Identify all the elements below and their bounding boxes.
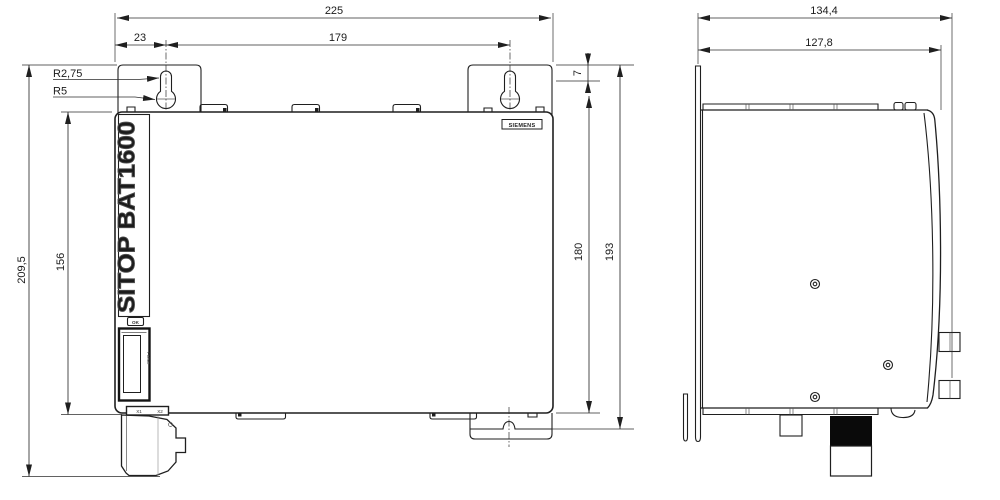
dim-height-with-tab: 193 xyxy=(604,243,616,261)
top-clip-nub xyxy=(223,108,227,112)
bottom-vent-rail xyxy=(703,408,878,415)
dimension-drawing-canvas: SIEMENS SITOP BAT1600 OK FUSE X1 X2 xyxy=(0,0,1000,500)
dim-total-width: 225 xyxy=(325,5,343,17)
battery-connector-outline xyxy=(122,415,186,476)
bottom-clip xyxy=(236,413,286,419)
dim-total-height: 209,5 xyxy=(16,256,28,284)
screw xyxy=(811,393,820,402)
top-terminal-bump xyxy=(894,103,903,111)
dim-front-face-height: 156 xyxy=(55,253,67,271)
terminal-x1-label: X1 xyxy=(136,409,142,414)
dim-body-depth: 127,8 xyxy=(805,37,833,49)
dim-total-depth: 134,4 xyxy=(810,5,838,17)
mounting-flange-bottom-right xyxy=(470,413,552,439)
bottom-clip-nub xyxy=(432,413,436,417)
din-latch xyxy=(684,394,688,441)
top-clip-nub xyxy=(416,108,420,112)
bottom-flange-slot xyxy=(470,422,552,430)
dim-body-height: 180 xyxy=(573,243,585,261)
dim-flange-drop: 7 xyxy=(572,70,584,76)
terminal-x2-label: X2 xyxy=(157,409,163,414)
dim-keyhole-offset: 23 xyxy=(134,32,146,44)
front-cover-inner-curve xyxy=(924,113,933,402)
top-clip-nub xyxy=(315,108,319,112)
side-view: 134,4 127,8 xyxy=(684,5,961,476)
back-mounting-plate xyxy=(696,66,701,442)
screw xyxy=(811,280,820,289)
dim-slot-radius: R2,75 xyxy=(53,68,82,80)
small-bottom-connector xyxy=(780,415,802,436)
front-cover-outer-curve xyxy=(927,110,941,408)
screw xyxy=(884,361,893,370)
front-view: SIEMENS SITOP BAT1600 OK FUSE X1 X2 xyxy=(16,5,634,477)
ok-indicator-label: OK xyxy=(132,320,140,325)
dim-keyhole-pitch: 179 xyxy=(329,32,347,44)
technical-drawing-page: SIEMENS SITOP BAT1600 OK FUSE X1 X2 xyxy=(0,0,1000,500)
dim-hole-radius: R5 xyxy=(53,86,67,98)
bottom-hook-tongue xyxy=(891,408,915,418)
leader-hole-radius xyxy=(53,97,155,100)
enclosure-body xyxy=(115,112,553,413)
top-vent-rail xyxy=(703,104,878,110)
side-hook-upper xyxy=(939,333,960,352)
side-hook-lower xyxy=(939,381,960,399)
brand-label: SIEMENS xyxy=(509,123,536,129)
battery-plug-lower xyxy=(831,446,872,476)
top-terminal-bump xyxy=(905,103,916,111)
battery-plug-upper xyxy=(831,417,872,447)
bottom-clip-nub xyxy=(238,413,242,417)
fuse-label: FUSE xyxy=(146,352,151,364)
product-label: SITOP BAT1600 xyxy=(114,121,141,313)
fuse-holder-window xyxy=(124,336,141,393)
